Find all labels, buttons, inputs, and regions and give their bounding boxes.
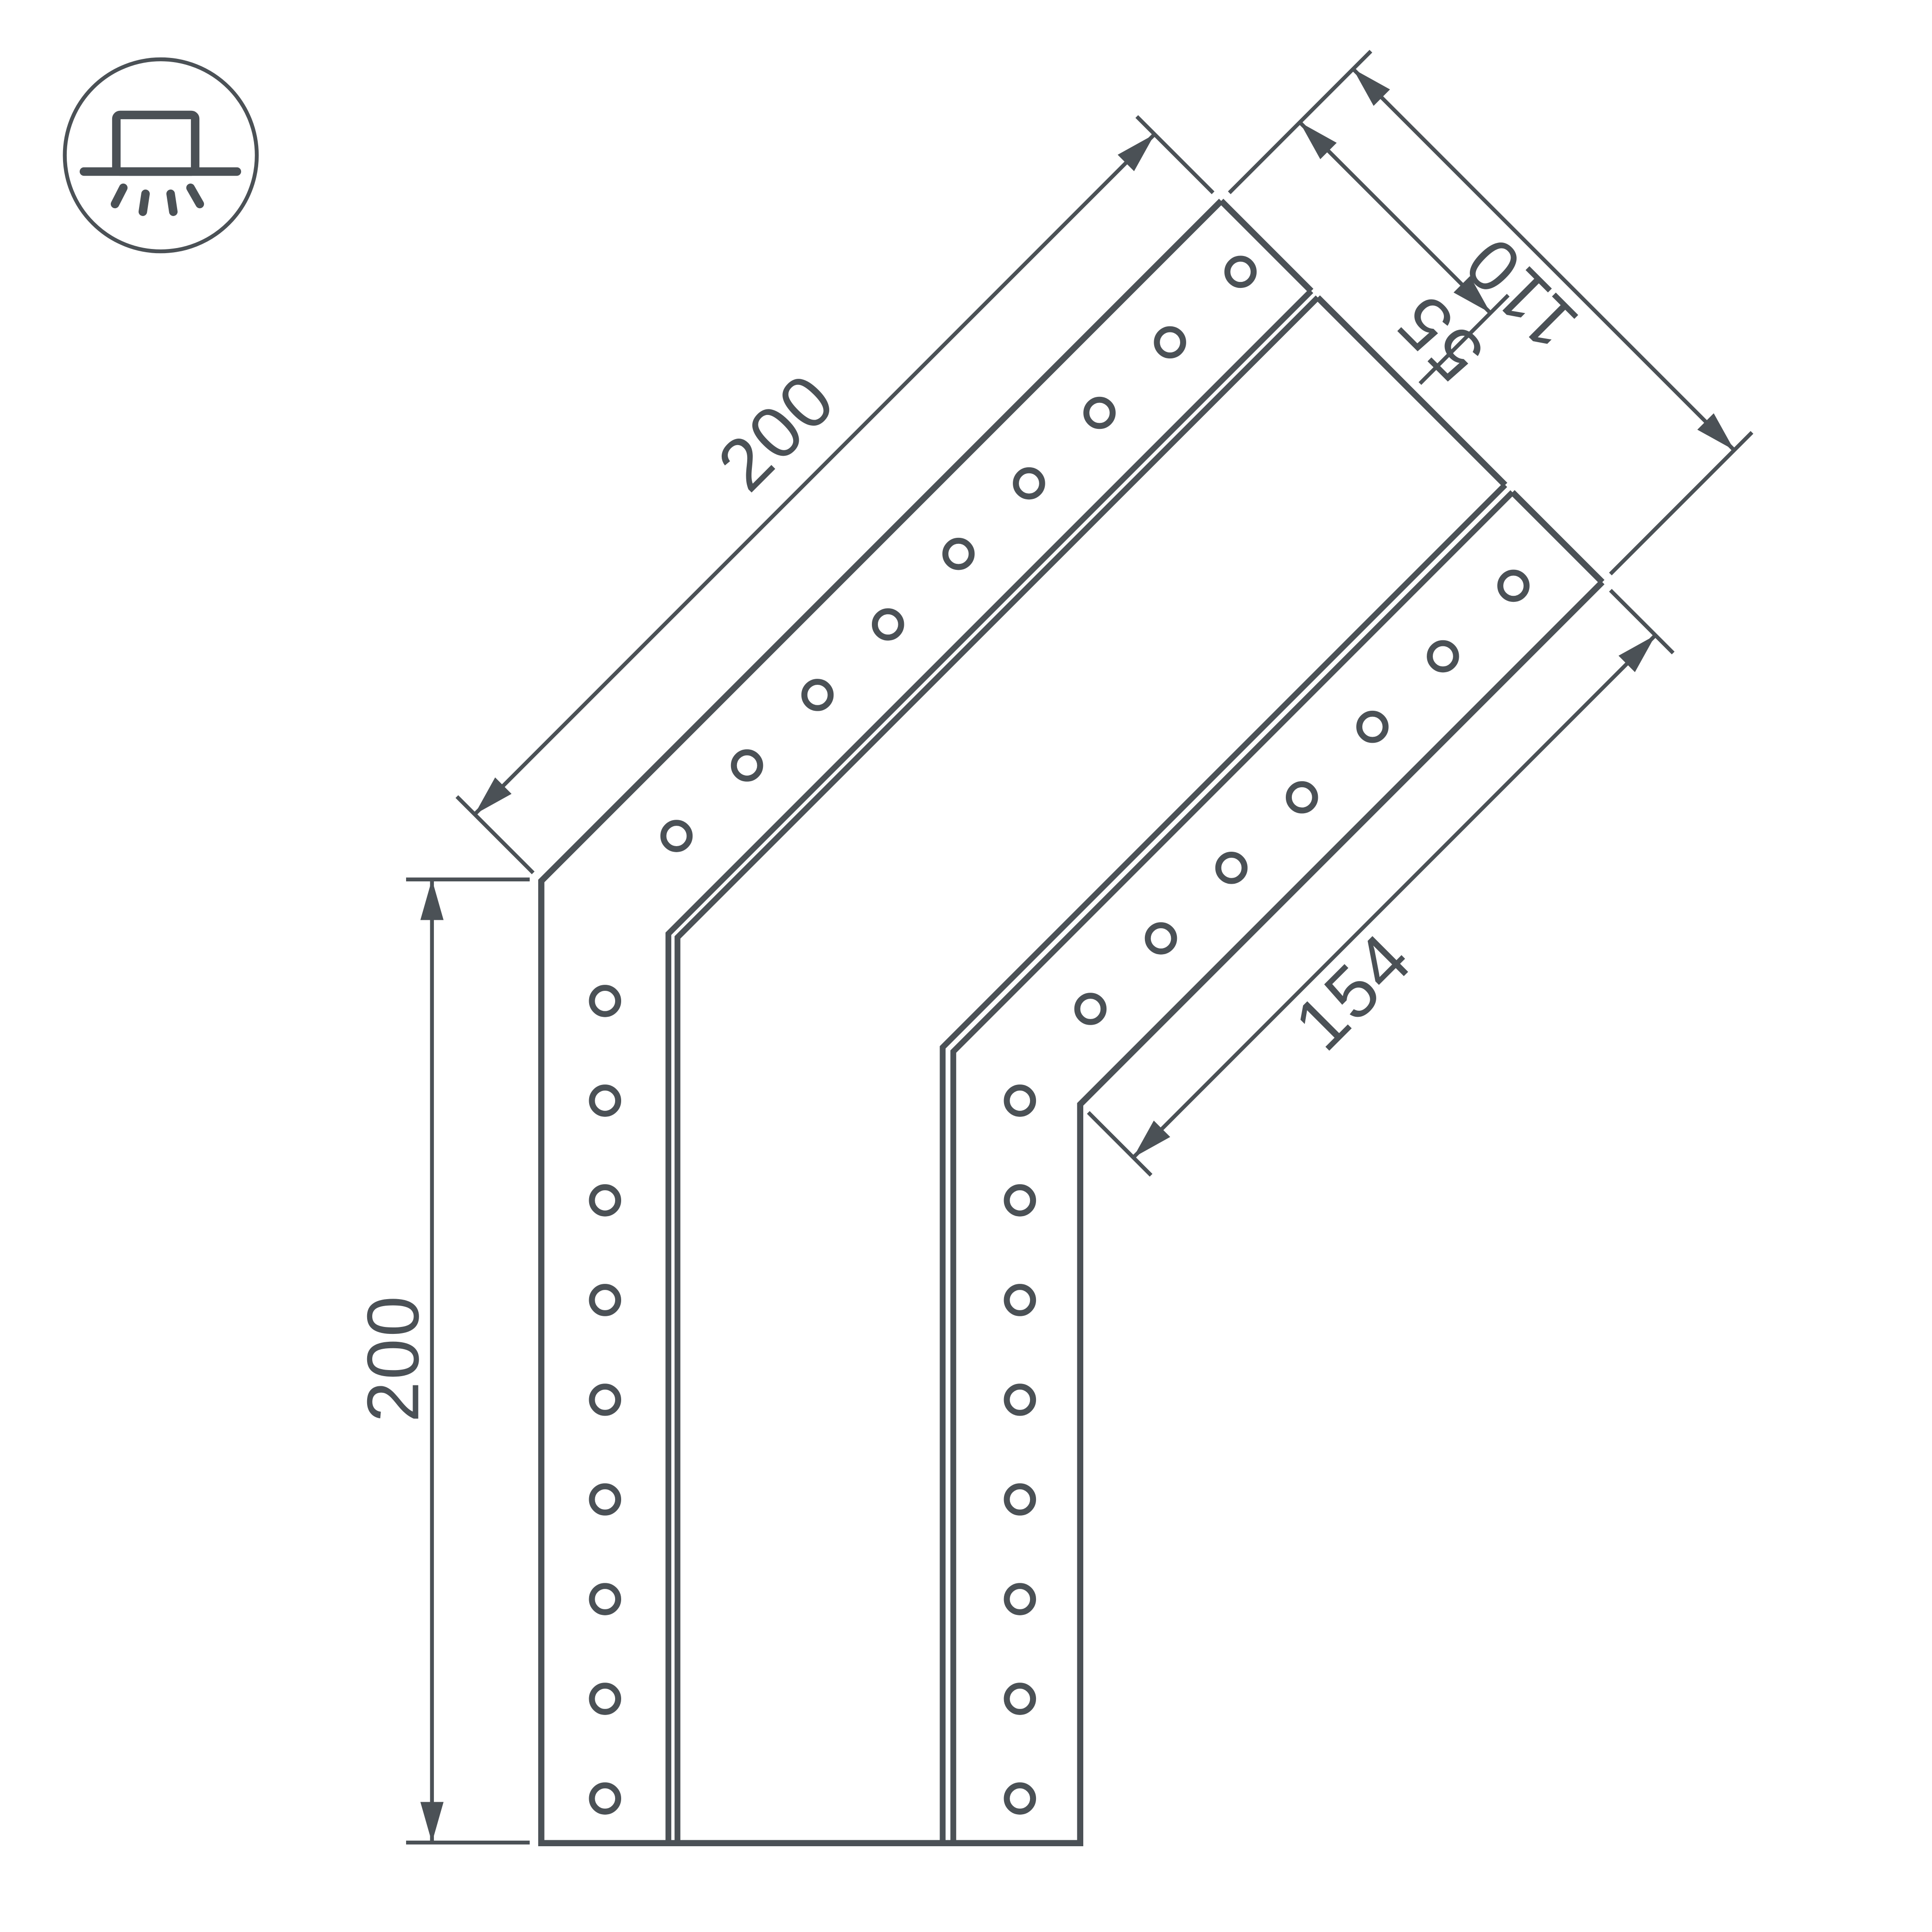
mounting-hole xyxy=(591,1686,618,1712)
mounting-hole xyxy=(591,1586,618,1613)
mounting-hole xyxy=(591,1785,618,1812)
extension-line xyxy=(1137,116,1213,193)
icon-light-ray xyxy=(171,194,173,212)
icon-circle-border xyxy=(64,59,256,251)
mounting-hole xyxy=(1157,329,1183,356)
mounting-hole xyxy=(1500,573,1526,599)
dimension-line xyxy=(1133,635,1655,1157)
profile-outer-edge xyxy=(541,201,1602,1843)
icon-fixture-box xyxy=(116,115,195,172)
mounting-hole xyxy=(1086,400,1112,426)
mounting-hole xyxy=(1430,643,1456,670)
mounting-hole xyxy=(591,1187,618,1214)
icon-light-ray xyxy=(143,194,146,212)
mounting-hole xyxy=(1007,1486,1033,1513)
dimension-label-154: 154 xyxy=(1278,917,1427,1066)
dimension-diagonal-leg: 200 xyxy=(457,116,1213,873)
dimension-label-diagonal-200: 200 xyxy=(702,357,851,506)
channel-edge-line xyxy=(942,485,1505,1843)
mounting-hole xyxy=(591,1088,618,1114)
corner-profile-outline xyxy=(541,201,1602,1843)
mounting-hole xyxy=(591,1287,618,1314)
mounting-hole xyxy=(945,541,972,567)
mounting-hole xyxy=(1007,1686,1033,1712)
mounting-hole xyxy=(1227,259,1253,285)
mounting-hole xyxy=(1007,1088,1033,1114)
mounting-hole xyxy=(1218,854,1245,881)
icon-light-ray xyxy=(115,188,123,204)
mounting-hole xyxy=(1007,1785,1033,1812)
mounting-hole xyxy=(1007,1586,1033,1613)
dimension-line xyxy=(474,134,1154,815)
dimension-label-vertical-200: 200 xyxy=(352,1294,434,1422)
end-cap-segment xyxy=(1221,201,1311,291)
mounting-hole xyxy=(1148,925,1174,952)
mounting-hole xyxy=(1077,996,1104,1022)
mounting-hole xyxy=(663,823,690,849)
mounting-hole xyxy=(591,1387,618,1413)
mounting-hole xyxy=(1359,714,1385,740)
mounting-hole xyxy=(804,682,831,708)
end-cap-segment xyxy=(1512,492,1602,582)
mounting-hole xyxy=(1289,784,1315,810)
drawing-canvas: 200 200 110 55 154 xyxy=(0,0,1932,1932)
arrowhead xyxy=(420,880,443,920)
mounting-hole xyxy=(1007,1287,1033,1314)
extension-line xyxy=(457,797,533,873)
dimension-vertical-leg: 200 xyxy=(352,880,529,1843)
channel-edge-line xyxy=(953,492,1512,1843)
icon-light-ray xyxy=(191,188,200,204)
extension-line xyxy=(1610,433,1752,574)
dimension-inner-edge: 154 xyxy=(1088,590,1673,1175)
mounting-hole xyxy=(591,988,618,1014)
mounting-hole xyxy=(875,611,901,638)
arrowhead xyxy=(420,1802,443,1843)
surface-mount-light-icon xyxy=(64,59,256,251)
mounting-holes xyxy=(591,259,1526,1811)
technical-drawing: 200 200 110 55 154 xyxy=(0,0,1932,1932)
mounting-hole xyxy=(1016,470,1042,497)
mounting-hole xyxy=(1007,1187,1033,1214)
mounting-hole xyxy=(734,752,760,779)
mounting-hole xyxy=(591,1486,618,1513)
mounting-hole xyxy=(1007,1387,1033,1413)
